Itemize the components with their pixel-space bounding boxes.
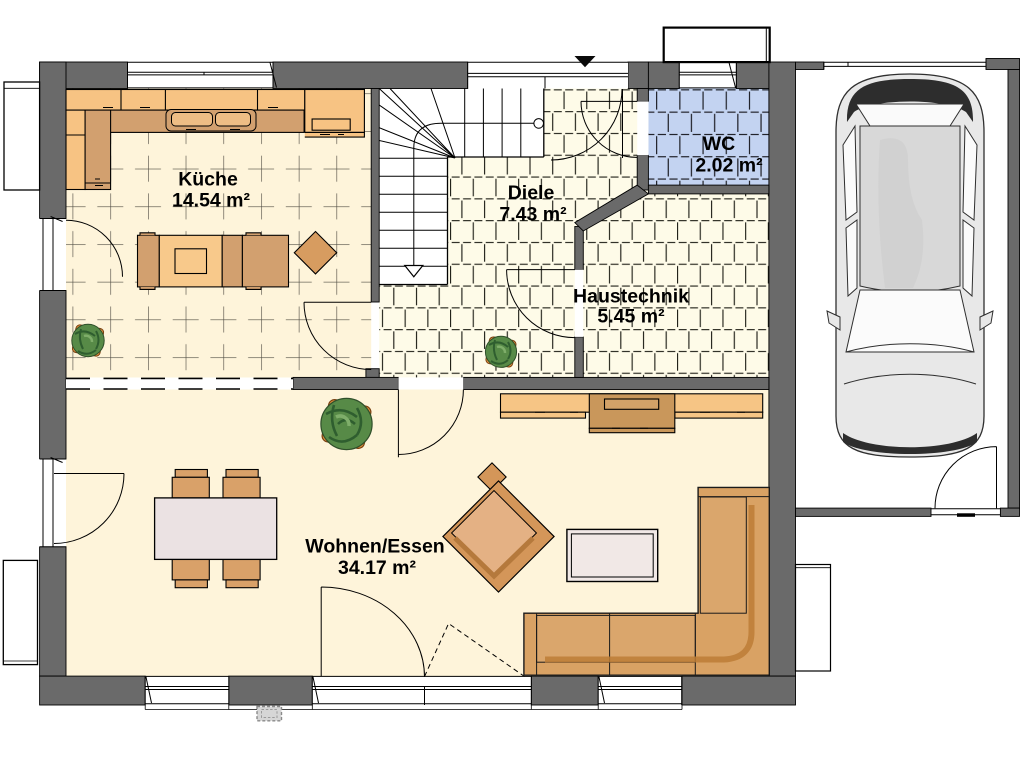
svg-text:WC: WC [703, 133, 736, 155]
svg-text:7.43 m²: 7.43 m² [499, 204, 567, 226]
svg-text:Wohnen/Essen: Wohnen/Essen [305, 536, 444, 558]
svg-text:Diele: Diele [508, 182, 555, 204]
svg-text:34.17 m²: 34.17 m² [338, 557, 417, 579]
svg-text:Haustechnik: Haustechnik [573, 286, 689, 308]
svg-text:2.02 m²: 2.02 m² [695, 155, 763, 177]
svg-text:Küche: Küche [178, 169, 238, 191]
svg-text:5.45 m²: 5.45 m² [597, 306, 665, 328]
svg-text:14.54 m²: 14.54 m² [172, 190, 251, 212]
